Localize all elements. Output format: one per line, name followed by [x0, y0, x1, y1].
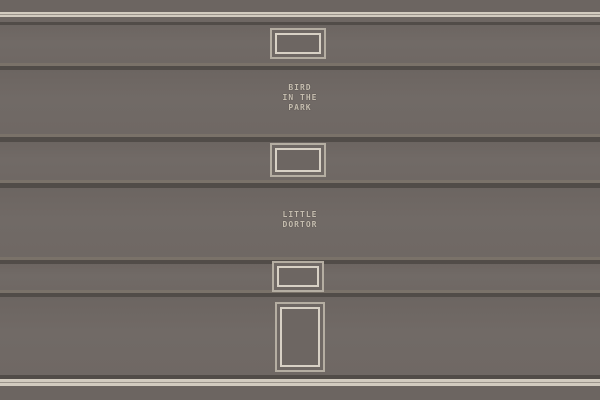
top-band [0, 0, 600, 12]
door-frame [275, 302, 325, 372]
window-frame-middle [270, 143, 326, 177]
sign-line: IN THE [0, 93, 600, 103]
window-pane [275, 148, 321, 172]
sign-line: LITTLE [0, 210, 600, 220]
window-pane [277, 266, 319, 287]
sign-line: DORTOR [0, 220, 600, 230]
panel-wall: BIRD IN THE PARK LITTLE DORTOR [0, 0, 600, 400]
window-pane [275, 33, 321, 54]
door-panel [280, 307, 320, 367]
window-frame-lower [272, 261, 324, 292]
sign-little-dortor: LITTLE DORTOR [0, 210, 600, 230]
sign-line: PARK [0, 103, 600, 113]
sign-bird-in-the-park: BIRD IN THE PARK [0, 83, 600, 113]
bottom-band [0, 386, 600, 400]
sign-line: BIRD [0, 83, 600, 93]
window-frame-top [270, 28, 326, 59]
